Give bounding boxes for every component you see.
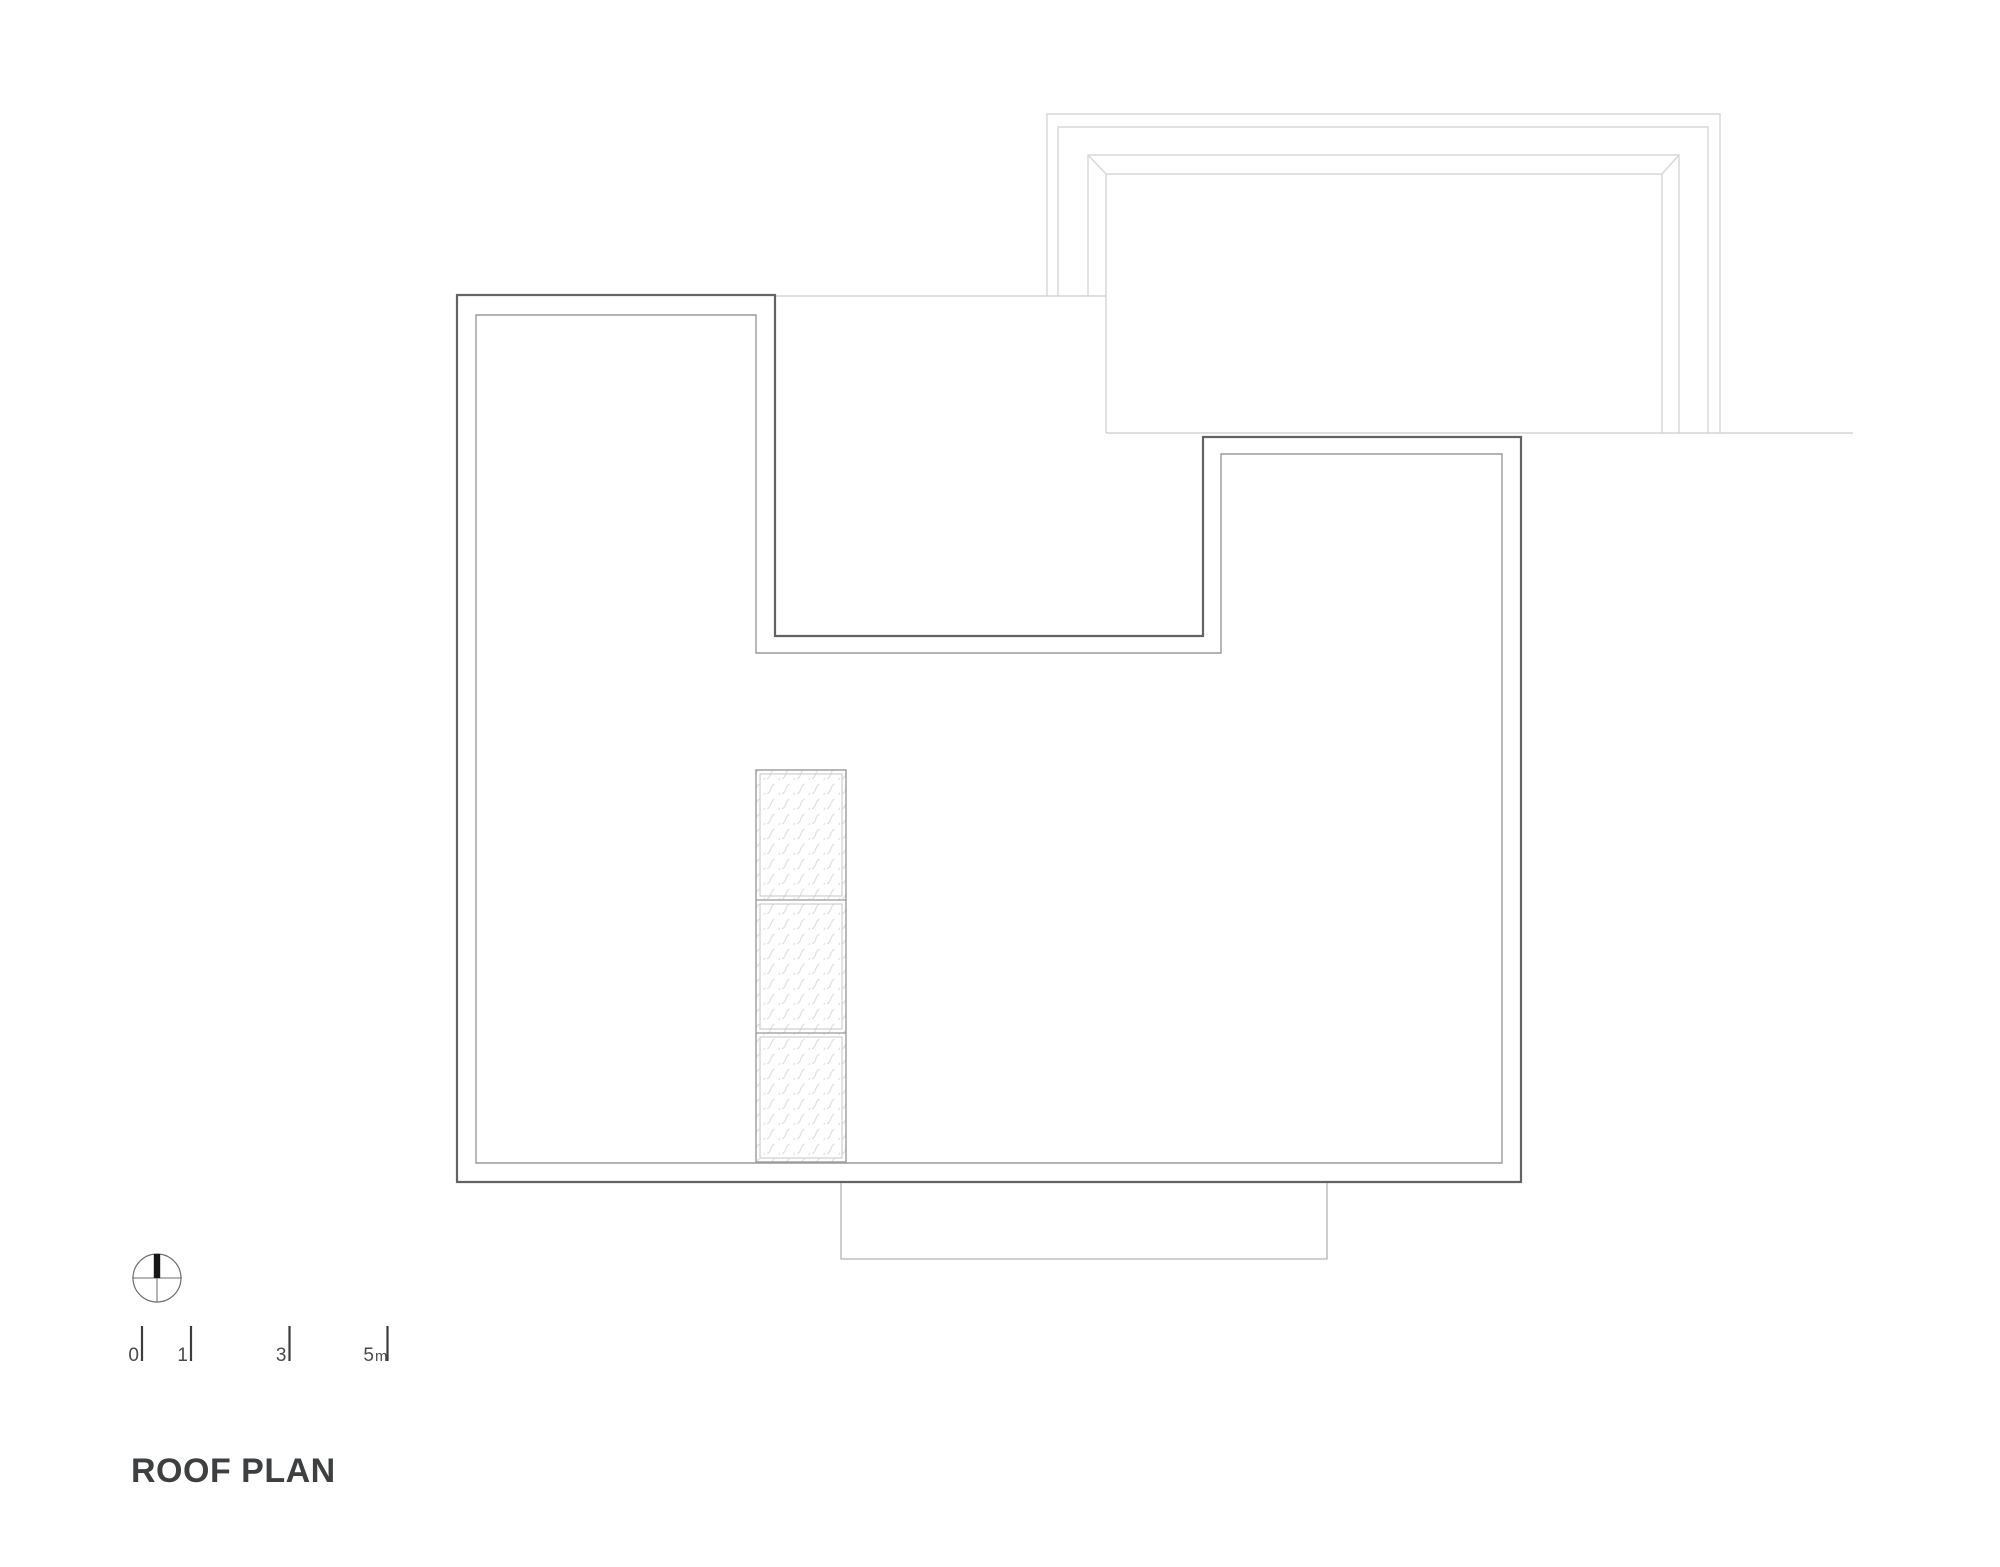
- hip-corner-right-diagonal: [1662, 155, 1679, 174]
- north-arrow-icon: [132, 1254, 182, 1302]
- main-roof-outline: [457, 295, 1521, 1182]
- scale-label-5: 5: [363, 1345, 374, 1366]
- drawing-title: ROOF PLAN: [131, 1452, 336, 1490]
- upper-roof-outer-edge: [1047, 114, 1720, 433]
- scale-label-1: 1: [177, 1345, 188, 1366]
- scale-bar: 0 1 3 5 m: [128, 1326, 387, 1366]
- scale-label-0: 0: [128, 1345, 139, 1366]
- north-arrow-needle: [154, 1254, 160, 1278]
- hip-corner-left-diagonal: [1088, 155, 1106, 174]
- skylight-strip-outline: [756, 770, 846, 1162]
- upper-roof-hip-inner-edge: [1106, 174, 1662, 433]
- skylight-strip: [756, 770, 846, 1162]
- roof-plan-drawing: 0 1 3 5 m ROOF PLAN: [0, 0, 2000, 1567]
- upper-roof-second-edge: [1058, 127, 1708, 433]
- lower-roof-edges: [775, 296, 1853, 433]
- upper-roof-hip-outer-edge: [1088, 155, 1679, 433]
- terrace-outline: [841, 1183, 1327, 1259]
- scale-unit-label: m: [375, 1348, 388, 1365]
- upper-roof-volume: [1047, 114, 1720, 433]
- scale-label-3: 3: [276, 1345, 287, 1366]
- roof-plan-sheet: 0 1 3 5 m ROOF PLAN: [0, 0, 2000, 1567]
